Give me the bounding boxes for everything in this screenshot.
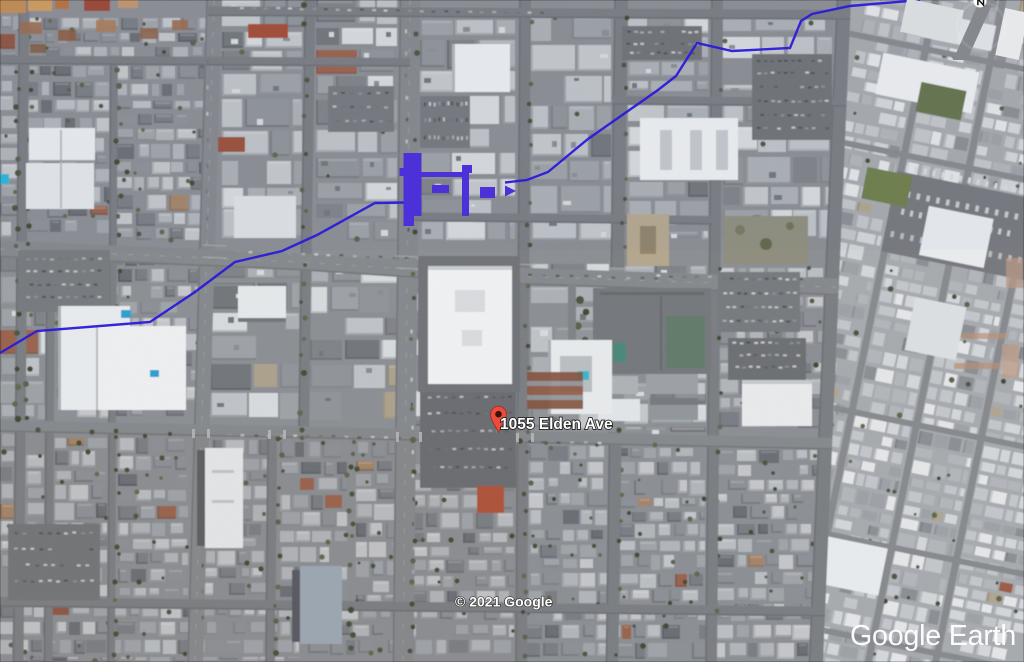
svg-text:1055 Elden Ave: 1055 Elden Ave <box>500 416 613 433</box>
svg-text:Google Earth: Google Earth <box>850 620 1016 652</box>
svg-text:© 2021 Google: © 2021 Google <box>455 594 553 610</box>
